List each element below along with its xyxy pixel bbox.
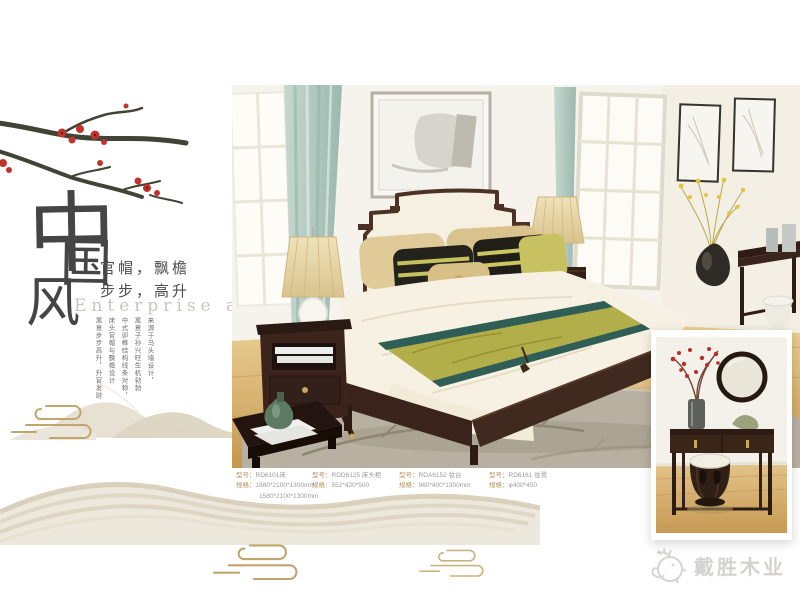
- model-value: RDA6152 妆台: [419, 472, 462, 479]
- vertical-description-col: 床头官帽与飘檐设计: [104, 317, 117, 413]
- title-char-feng: 风: [26, 276, 80, 330]
- vertical-description: 来源于马头墙设计， 寓意子孙兴旺生机勃勃 中式卯榫结构线条对称， 床头官帽与飘檐…: [96, 317, 156, 413]
- vertical-description-col: 寓意步步高升，升官发财: [91, 317, 104, 413]
- small-frame-left: [678, 104, 721, 181]
- product-spec-vanity: 型号：RDA6152 妆台 规格：960*400*1300mm: [399, 471, 471, 492]
- gold-cloud-icon: [420, 550, 483, 576]
- tagline-line1: 官帽，飘檐: [100, 257, 190, 278]
- vertical-description-col: 来源于马头墙设计，: [143, 317, 156, 413]
- size-value: 1880*2100*1300mm: [256, 482, 315, 489]
- model-label: 型号：: [312, 472, 332, 479]
- catalog-page: 中 国 风 官帽，飘檐 步步，高升 Enterprise album 来源于马头…: [0, 0, 800, 600]
- model-label: 型号：: [399, 472, 419, 479]
- size-label: 规格：: [399, 482, 419, 489]
- console-vase-small: [766, 228, 778, 252]
- wall-art-frame: [372, 93, 490, 197]
- console-vase-large: [782, 224, 796, 252]
- brand-name: 戴胜木业: [694, 551, 786, 580]
- gold-cloud-icon: [12, 406, 91, 438]
- size-label: 规格：: [312, 482, 332, 489]
- vertical-description-col: 中式卯榫结构线条对称，: [117, 317, 130, 413]
- brand-logo: 戴胜木业: [649, 545, 786, 585]
- model-value: RDD6125 床头柜: [332, 472, 382, 479]
- left-window: [232, 92, 292, 306]
- vertical-description-col: 寓意子孙兴旺生机勃勃: [130, 317, 143, 413]
- product-spec-bed: 型号：RD6101床 规格：1880*2100*1300mm 1580*2100…: [236, 471, 318, 502]
- small-frame-right: [733, 98, 775, 171]
- gold-cloud-icon: [214, 545, 296, 579]
- size-label: 规格：: [489, 482, 509, 489]
- model-label: 型号：: [489, 472, 509, 479]
- model-value: RD6161 妆凳: [509, 472, 548, 479]
- size-value-2: 1580*2100*1300mm: [259, 493, 318, 500]
- model-label: 型号：: [236, 472, 256, 479]
- size-value: 552*420*500: [332, 482, 370, 489]
- size-label: 规格：: [236, 482, 256, 489]
- product-spec-stool: 型号：RD6161 妆凳 规格：φ400*450: [489, 471, 547, 492]
- size-value: φ400*450: [509, 482, 537, 489]
- model-value: RD6101床: [256, 472, 286, 479]
- product-spec-nightstand: 型号：RDD6125 床头柜 规格：552*420*500: [312, 471, 381, 492]
- right-window: [574, 94, 665, 289]
- size-value: 960*400*1300mm: [419, 482, 471, 489]
- round-mirror: [719, 354, 765, 400]
- product-specs-row: 型号：RD6101床 规格：1880*2100*1300mm 1580*2100…: [0, 471, 800, 511]
- hoopoe-bird-icon: [649, 545, 687, 585]
